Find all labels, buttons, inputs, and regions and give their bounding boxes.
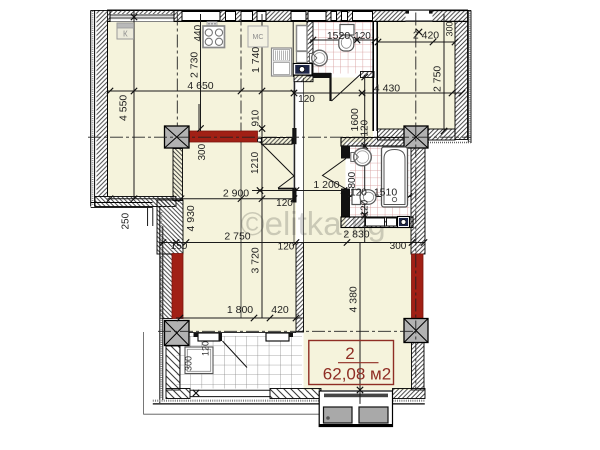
svg-text:120: 120	[278, 242, 295, 253]
svg-text:2 900: 2 900	[223, 188, 249, 200]
svg-text:4 930: 4 930	[185, 205, 197, 231]
svg-text:300: 300	[197, 143, 208, 160]
svg-text:2 750: 2 750	[432, 66, 444, 92]
svg-text:1 740: 1 740	[250, 47, 262, 73]
svg-text:910: 910	[251, 109, 262, 126]
svg-text:300: 300	[445, 21, 455, 36]
svg-text:К: К	[123, 30, 128, 39]
svg-text:420: 420	[271, 304, 289, 316]
svg-text:3 720: 3 720	[250, 247, 262, 273]
svg-text:120: 120	[298, 94, 315, 105]
svg-text:2 830: 2 830	[343, 229, 369, 241]
svg-text:2 730: 2 730	[189, 52, 201, 78]
svg-text:1520: 1520	[327, 30, 351, 42]
svg-text:120: 120	[354, 31, 371, 42]
svg-text:1 800: 1 800	[227, 304, 253, 316]
svg-text:МС: МС	[253, 34, 264, 41]
svg-text:1 200: 1 200	[313, 179, 339, 191]
svg-text:150: 150	[171, 241, 188, 252]
svg-text:4 380: 4 380	[348, 286, 360, 312]
svg-text:1510: 1510	[374, 187, 398, 199]
svg-text:4 430: 4 430	[374, 83, 400, 95]
svg-text:800: 800	[347, 171, 358, 188]
svg-text:2 750: 2 750	[224, 231, 250, 243]
svg-text:120: 120	[201, 341, 211, 356]
svg-text:120: 120	[360, 119, 371, 136]
svg-text:1210: 1210	[250, 151, 261, 174]
svg-text:4 650: 4 650	[187, 80, 213, 92]
svg-text:2 420: 2 420	[413, 30, 439, 42]
svg-text:120: 120	[276, 198, 293, 209]
svg-text:2: 2	[345, 344, 354, 363]
svg-text:4 550: 4 550	[118, 95, 130, 121]
svg-text:300: 300	[390, 241, 407, 252]
svg-text:250: 250	[121, 212, 132, 229]
svg-text:120: 120	[360, 199, 371, 216]
svg-text:62,08 м2: 62,08 м2	[323, 365, 391, 384]
svg-text:440: 440	[193, 24, 204, 41]
svg-text:300: 300	[184, 356, 194, 371]
